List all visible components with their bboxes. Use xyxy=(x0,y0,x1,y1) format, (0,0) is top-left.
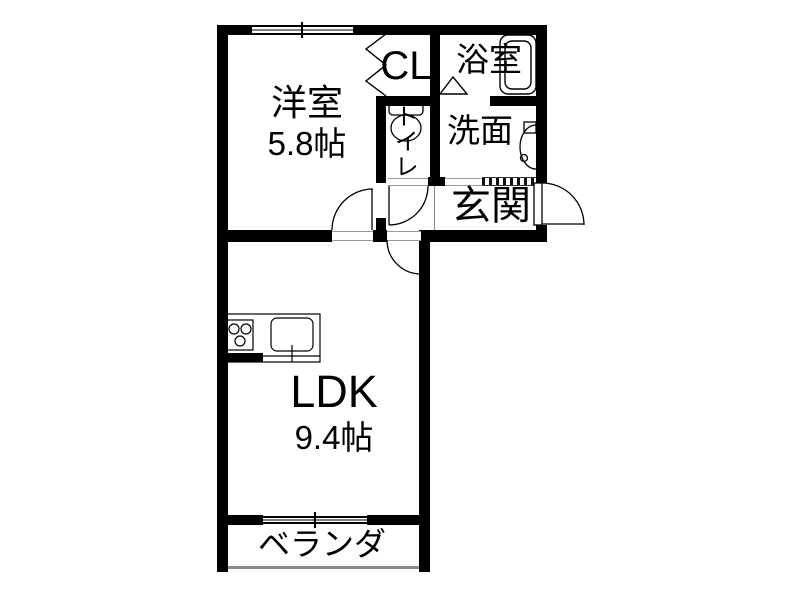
door-arc-toilet xyxy=(389,186,428,225)
ldk-name: LDK xyxy=(254,368,414,415)
window-western-top xyxy=(252,22,353,38)
label-veranda: ベランダ xyxy=(232,528,412,562)
label-closet: CL xyxy=(378,45,434,87)
bath-door-icon xyxy=(440,77,467,94)
floor-plan: 洋室 5.8帖 CL 浴室 トイレ 洗面 玄関 LDK 9.4帖 ベランダ xyxy=(0,0,800,600)
label-ldk: LDK 9.4帖 xyxy=(254,368,414,456)
label-entrance: 玄関 xyxy=(441,185,541,227)
kitchen-counter xyxy=(223,314,320,362)
label-washroom: 洗面 xyxy=(431,114,529,149)
door-arc-ldk xyxy=(387,240,421,274)
ldk-area: 9.4帖 xyxy=(254,421,414,456)
western-room-area: 5.8帖 xyxy=(227,127,387,162)
western-room-name: 洋室 xyxy=(227,84,387,122)
door-arc-western xyxy=(332,189,373,230)
label-bath: 浴室 xyxy=(440,43,538,78)
door-arc-entrance xyxy=(542,183,584,225)
label-western-room: 洋室 5.8帖 xyxy=(227,84,387,161)
label-toilet: トイレ xyxy=(391,101,416,181)
fixtures-layer xyxy=(0,0,800,600)
